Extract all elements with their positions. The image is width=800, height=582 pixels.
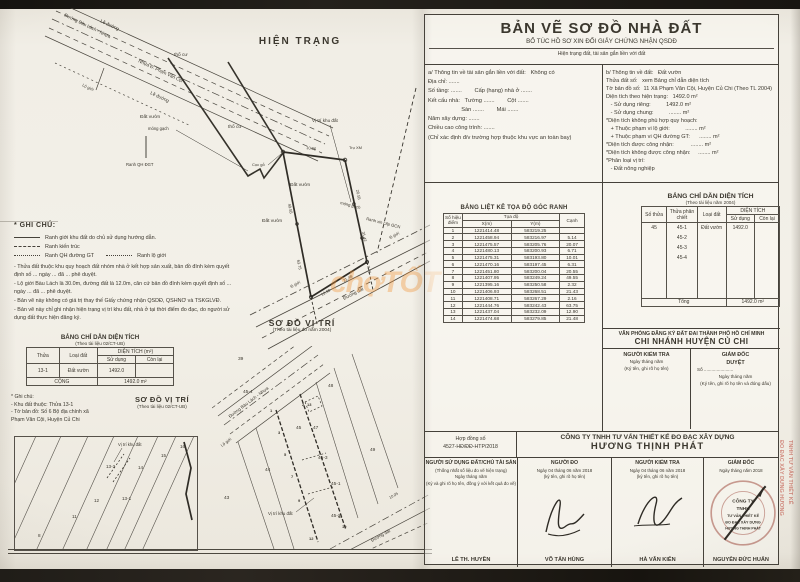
point-no: 14 [444,315,463,322]
y-coord: 583268.51 [511,288,560,295]
edge-length: 63.75 [560,302,585,309]
col-header: Còn lại [136,356,174,364]
parcel-number: 45 [296,425,302,431]
x-coord: 1221414.48 [462,227,511,234]
tables-section: BẢNG LIỆT KÊ TỌA ĐỘ GÓC RANH Số hiệu điể… [425,183,778,431]
coord-row: 7 1221451.80 583200.04 20.55 [444,268,585,275]
sig-sub: (Thống nhất số liệu đo vẽ hiện trạng) [425,468,517,475]
dim-label: 10.05 [306,145,317,151]
y-coord: 583267.29 [511,295,560,302]
coord-row: 14 1221474.68 583279.85 21.48 [444,315,585,322]
marker-label: Cọc gỗ [252,162,265,167]
info-line: Sàn ....... Mái ....... [428,106,599,115]
parcel-number: 45-4 [243,389,253,395]
signer-name: LÊ TH. HUYỀN [425,556,517,564]
checker-cell: NGƯỜI KIỂM TRA Ngày tháng năm (Ký tên, g… [603,349,691,429]
info-line: Tờ bản đồ số: 11 Xã Phạm Văn Cội, Huyện … [606,85,775,93]
sig-cell-surveyor: NGƯỜI ĐO Ngày 04 tháng 06 năm 2018 (ký t… [517,458,611,567]
parcel-number: 13-1 [122,496,132,501]
form-note: Hiện trạng đất, tài sản gắn liền với đất [429,48,774,57]
info-line: *Diện tích được công nhận: ........ m² [606,141,775,149]
total-label: CỘNG [27,378,98,386]
edge-length: 49.55 [560,275,585,282]
feature-label: móng gạch [340,200,362,210]
stamp-bleed-text: TNHH TƯ VẤN THIẾT KẾ ĐO ĐẠC XÂY DỰNG HƯƠ… [780,440,798,565]
sig-cell-checker: NGƯỜI KIỂM TRA Ngày 04 tháng 06 năm 2018… [611,458,703,567]
cell: Đất vườn [59,364,97,378]
table-title: BẢNG CHỈ DẪN DIỆN TÍCH [26,334,174,341]
parcel-number: 12 [94,498,100,503]
location-diagram2: 39 43 44 45 47 48 49 45-1 45-2 45-3 45-4… [212,346,430,550]
info-line: Thửa đất số: xem Bảng chỉ dẫn diện tích [606,77,775,85]
parcel-number: 14 [138,465,144,470]
cell-subtitle: DUYỆT [691,359,780,367]
coord-row: 3 1221475.57 583205.76 20.07 [444,241,585,248]
stamp-text: ĐO ĐẠC XÂY DỰNG [725,519,760,524]
legend-text: Ranh lộ giới [137,252,166,260]
info-line: Số tầng: ....... Cấp (hạng) nhà ở ......… [428,87,599,96]
col-header: Còn lại [754,215,779,223]
sub-parcel: 45-2 [668,235,696,241]
dim-label: 49.55 [287,203,294,215]
footnote-line: Phạm Văn Cội, Huyện Củ Chi [11,417,129,425]
parcel-number: 15 [161,453,167,458]
point-no: 6 [444,261,463,268]
cell-title: GIÁM ĐỐC [691,351,780,359]
edge-length: 6.71 [560,247,585,254]
footnote-line: - Tờ bản đồ: Số 6 Bộ địa chính xã [11,409,129,417]
cell: 13-1 [27,364,60,378]
x-coord: 1221470.16 [462,261,511,268]
point-number: 10 [342,524,347,529]
signature-stroke [518,484,612,542]
total-value: 1492.0 m² [726,298,779,306]
sig-title: NGƯỜI SỬ DỤNG ĐẤT/CHỦ TÀI SẢN [425,460,517,468]
location-diagram1-title: SƠ ĐỒ VỊ TRÍ (Theo tài liệu 02/CT-UB) [116,395,208,409]
point-no: 11 [444,295,463,302]
scanned-land-survey-document: HIỆN TRẠNG [0,0,800,582]
x-coord: 1221480.13 [462,247,511,254]
land-type-label: Đất vườn [262,218,283,224]
info-line: - Sử dụng riêng: 1492.0 m² [606,101,775,109]
cell-title: NGƯỜI KIỂM TRA [603,351,690,359]
page-rule [8,549,432,554]
col-header: Cạnh [560,214,585,228]
sig-title: NGƯỜI ĐO [518,460,611,468]
col-header: DIỆN TÍCH [726,207,779,215]
y-coord: 583250.58 [511,281,560,288]
number-line: Số ....................... [691,367,780,374]
coord-row: 4 1221480.13 583200.93 6.71 [444,247,585,254]
sig-title: GIÁM ĐỐC [704,460,778,468]
source: (Theo tài liệu đo năm 2004) [244,328,360,333]
signer-name: NGUYỄN ĐỨC HUẤN [704,556,778,564]
location-diagram2-title: SƠ ĐỒ VỊ TRÍ (Theo tài liệu đo năm 2004) [244,318,360,333]
y-coord: 583242.43 [511,302,560,309]
office-branch: CHI NHÁNH HUYỆN CỦ CHI [603,337,780,346]
y-coord: 583197.45 [511,261,560,268]
sub-parcel: 45-3 [668,245,696,251]
y-coord: 583279.85 [511,315,560,322]
sign-note: (Ký tên, ghi rõ họ tên) [603,366,690,373]
location-diagram1: 8 11 12 13-1 13-2 14 15 16 Vị trí khu đấ… [14,436,198,551]
sign-note: (ký tên, ghi rõ họ tên) [518,474,611,481]
col-header: Số thửa [642,207,667,223]
coord-row: 8 1221407.95 583249.24 49.55 [444,275,585,282]
point-number: 11 [338,514,343,519]
point-no: 1 [444,227,463,234]
sub-parcel: 45-4 [668,255,696,261]
coord-row: 11 1221408.71 583267.29 2.16 [444,295,585,302]
land-type-label: Đất vườn [140,114,161,120]
edge-length: 20.55 [560,268,585,275]
source: (Theo tài liệu 02/CT-UB) [116,404,208,409]
sig-cell-land-user: NGƯỜI SỬ DỤNG ĐẤT/CHỦ TÀI SẢN (Thống nhấ… [425,458,517,567]
road-label: Lộ giới [220,436,233,447]
coordinates-column: BẢNG LIỆT KÊ TỌA ĐỘ GÓC RANH Số hiệu điể… [425,183,603,431]
x-coord: 1221475.31 [462,254,511,261]
point-no: 7 [444,268,463,275]
col-header: Thửa [27,348,60,364]
x-coord: 1221474.68 [462,315,511,322]
x-coord: 1221444.76 [462,302,511,309]
road-label: lộ giới [289,279,301,288]
vi-tri-label: Vị trí khu đất [268,511,293,516]
area-table: Số thửa Thửa phân chiết Loại đất DIỆN TÍ… [641,206,780,307]
parcel-number: 48 [328,383,334,389]
total-value: 1492.0 m² [97,378,173,386]
company-name: CÔNG TY TNHH TƯ VẤN THIẾT KẾ ĐO ĐẠC XÂY … [517,434,778,441]
col-header: X(m) [462,220,511,227]
area-table-title: BẢNG CHỈ DẪN DIỆN TÍCH [641,193,780,200]
info-line: *Diện tích không được công nhận: .......… [606,149,775,157]
legend-dash-line [14,246,40,247]
coord-row: 1 1221414.48 583219.25 [444,227,585,234]
title: SƠ ĐỒ VỊ TRÍ [116,395,208,404]
coord-row: 6 1221470.16 583197.45 6.31 [444,261,585,268]
dim-label: 10.05 [389,492,399,500]
coord-table-title: BẢNG LIỆT KÊ TỌA ĐỘ GÓC RANH [443,205,585,211]
contract-cell: Hợp đồng số 4527-HĐ/ĐĐ-HTP/2018 [425,432,517,457]
point-no: 10 [444,288,463,295]
date-line: Ngày 04 tháng 06 năm 2018 [612,468,703,475]
parcel-number: 44 [265,467,271,473]
note-line: - Bản vẽ này chỉ ghi nhận hiện trạng vị … [14,306,238,322]
legend-text: Ranh QH đường GT [45,252,94,260]
info-line: Kết cấu nhà: Tường ....... Cột ....... [428,97,599,106]
point-number: 9 [298,498,301,503]
info-line: Chiều cao công trình: ....... [428,124,599,133]
col-header: DIỆN TÍCH (m²) [97,348,173,356]
legend-dashdot-line [14,255,40,256]
info-line: Địa chỉ: ....... [428,78,599,87]
edge-length: 2.32 [560,281,585,288]
info-line: *Phân loại vị trí: [606,157,775,165]
y-coord: 583200.93 [511,247,560,254]
info-line: Năm xây dựng: ....... [428,115,599,124]
form-title: BẢN VẼ SƠ ĐỒ NHÀ ĐẤT [425,20,778,37]
parcel-number: 39 [238,356,244,362]
x-coord: 1221407.95 [462,275,511,282]
note-line: - Bản vẽ này không có giá trị thay thế G… [14,297,238,305]
notes-paragraphs: - Thửa đất thuộc khu quy hoạch đất nhóm … [14,263,238,323]
info-line: a/ Thông tin về tài sản gắn liền với đất… [428,69,599,78]
company-brand: HƯƠNG THỊNH PHÁT [517,441,778,452]
dim-label: 20.55 [355,189,362,201]
coord-row: 13 1221437.04 583232.09 12.90 [444,308,585,315]
road-label: lộ giới [388,230,400,239]
land-type-label: thổ cư [228,123,242,130]
x-coord: 1221475.57 [462,241,511,248]
y-coord: 583193.80 [511,254,560,261]
point-no: 3 [444,241,463,248]
su-dung: 1492.0 [726,223,754,299]
parcel-number: 11 [72,514,77,519]
col-header: Thửa phân chiết [667,207,698,223]
area-index-table-ctub: BẢNG CHỈ DẪN DIỆN TÍCH (Theo tài liệu 02… [26,334,174,386]
stamp-text: HƯƠNG THỊNH PHÁT [725,525,762,530]
signer-name: HÀ VĂN KIÊN [612,556,703,564]
total-label: Tổng [642,298,727,306]
col-header: Loại đất [59,348,97,364]
title: SƠ ĐỒ VỊ TRÍ [244,318,360,328]
coord-row: 9 1221395.16 583250.58 2.32 [444,281,585,288]
sig-cell-director: GIÁM ĐỐC Ngày tháng năm 2018 CÔNG TY TNH… [703,458,778,567]
sign-note: (Ký tên, ghi rõ họ tên và đóng dấu) [691,381,780,388]
info-line: + Thuộc phạm vi lộ giới: ........ m² [606,125,775,133]
cell [136,364,174,378]
loai-dat: Đất vườn [697,223,726,299]
coord-row: 2 1221458.94 583216.97 5.14 [444,234,585,241]
info-line: Diện tích theo hiện trạng: 1492.0 m² [606,93,775,101]
point-number: 1 [270,408,273,413]
date-line: Ngày tháng năm [603,359,690,366]
footnote-line: - Khu đất thuộc: Thửa 13-1 [11,402,129,410]
x-coord: 1221395.16 [462,281,511,288]
notes-title: * GHI CHÚ: [14,221,238,232]
point-number: 5 [284,452,287,457]
point-no: 4 [444,247,463,254]
registry-office-block: VĂN PHÒNG ĐĂNG KÝ ĐẤT ĐAI THÀNH PHỐ HỒ C… [603,328,780,431]
legend-dashdot-line [106,255,132,256]
point-no: 12 [444,302,463,309]
point-no: 2 [444,234,463,241]
col-header: Loại đất [697,207,726,223]
point-number: 3 [278,430,281,435]
point-no: 5 [444,254,463,261]
point-no: 9 [444,281,463,288]
signature-stroke [612,484,704,542]
col-header: Y(m) [511,220,560,227]
con-lai [754,223,779,299]
so-thua: 45 [642,223,667,299]
info-line: + Thuộc phạm vi QH đường GT: ........ m² [606,133,775,141]
parcel-number: 43 [224,495,230,501]
info-line: - Sử dụng chung: ........ m² [606,109,775,117]
contract-number: 4527-HĐ/ĐĐ-HTP/2018 [425,443,516,451]
edge-length: 6.31 [560,261,585,268]
date-line: Ngày tháng năm [691,374,780,381]
info-section: a/ Thông tin về tài sản gắn liền với đất… [425,65,778,183]
coord-row: 5 1221475.31 583193.80 10.01 [444,254,585,261]
feature-label: móng gạch [148,126,169,131]
coord-row: 12 1221444.76 583242.43 63.75 [444,302,585,309]
area-table-source: (Theo tài liệu năm 2004) [641,200,780,205]
scan-crease [0,221,58,222]
y-coord: 583200.04 [511,268,560,275]
info-line: b/ Thông tin về đất: Đất vườn [606,69,775,77]
coord-table: Số hiệu điểm Tọa độ Cạnh X(m) Y(m) [443,213,585,323]
point-no: 13 [444,308,463,315]
date-line: Ngày tháng năm 2018 [704,468,778,475]
bleed-line: TNHH TƯ VẤN THIẾT KẾ [785,440,794,565]
info-line: - Đất nông nghiệp [606,165,775,173]
parcel-number: 8 [38,533,41,538]
date-line: Ngày 04 tháng 06 năm 2018 [518,468,611,475]
notes-block: * GHI CHÚ: Ranh giới khu đất do chủ sử d… [14,221,238,324]
land-type-label: thổ cư [174,51,188,58]
sign-note: (ký tên, ghi rõ họ tên) [612,474,703,481]
edge-length: 2.16 [560,295,585,302]
footnote-line: * Ghi chú: [11,394,129,402]
note-line: - Lộ giới Bàu Lách là 30.0m, đường đất l… [14,280,238,296]
parcel-number: 47 [313,425,319,431]
company-cell: CÔNG TY TNHH TƯ VẤN THIẾT KẾ ĐO ĐẠC XÂY … [517,432,778,457]
x-coord: 1221437.04 [462,308,511,315]
phan-chiet-list: 45-145-245-345-4 [667,223,698,299]
note-line: - Thửa đất thuộc khu quy hoạch đất nhóm … [14,263,238,279]
edge-length: 5.14 [560,234,585,241]
marker-label: Trụ XM [349,145,362,150]
parcel-number: 45-1 [331,481,341,487]
signature-section: Hợp đồng số 4527-HĐ/ĐĐ-HTP/2018 CÔNG TY … [425,431,778,566]
y-coord: 583232.09 [511,308,560,315]
x-coord: 1221458.94 [462,234,511,241]
x-coord: 1221451.80 [462,268,511,275]
dim-label: 63.75 [296,259,303,271]
area-office-column: BẢNG CHỈ DẪN DIỆN TÍCH (Theo tài liệu nă… [603,183,778,431]
col-header: Sử dụng [726,215,754,223]
cell: 1492.0 [97,364,135,378]
point-number: 13 [307,402,312,407]
point-no: 8 [444,275,463,282]
edge-length [560,227,585,234]
coord-row: 10 1221406.93 583268.51 21.43 [444,288,585,295]
land-info-column: b/ Thông tin về đất: Đất vườnThửa đất số… [603,65,778,182]
point-number: 7 [291,474,294,479]
boundary-label: Ranh QH ĐGT [126,162,154,167]
signer-name: VÕ TẤN HÙNG [518,556,611,564]
edge-length: 21.48 [560,315,585,322]
y-coord: 583216.97 [511,234,560,241]
parcel-number: 13-2 [106,464,116,469]
edge-length: 21.43 [560,288,585,295]
y-coord: 583219.25 [511,227,560,234]
parcel-number: 49 [370,447,376,453]
legend-text: Ranh giới khu đất do chủ sử dụng hướng d… [45,234,156,242]
col-header: Sử dụng [97,356,135,364]
legend-text: Ranh kiến trúc [45,243,80,251]
form-title-block: BẢN VẼ SƠ ĐỒ NHÀ ĐẤT BỔ TÚC HỒ SƠ XIN ĐỔ… [425,15,778,65]
road-label: Lộ giới [82,82,95,92]
road-label: Lề đường [150,90,171,103]
survey-form: BẢN VẼ SƠ ĐỒ NHÀ ĐẤT BỔ TÚC HỒ SƠ XIN ĐỔ… [424,14,779,565]
parcel-number: 45-3 [318,455,328,461]
asset-info-column: a/ Thông tin về tài sản gắn liền với đất… [425,65,603,182]
sig-title: NGƯỜI KIỂM TRA [612,460,703,468]
parcel-number: 16 [180,444,186,449]
x-coord: 1221408.71 [462,295,511,302]
edge-length: 10.01 [560,254,585,261]
vi-tri-label: Vị trí khu đất [118,442,142,447]
col-header: Số hiệu điểm [444,214,463,228]
legend-solid-line [14,237,40,238]
bleed-line: ĐO ĐẠC XÂY DỰNG HƯƠNG [780,440,785,565]
x-coord: 1221406.93 [462,288,511,295]
sub-parcel: 45-1 [668,225,696,231]
director-cell: GIÁM ĐỐC DUYỆT Số ......................… [691,349,780,429]
y-coord: 583249.24 [511,275,560,282]
left-footnote: * Ghi chú:- Khu đất thuộc: Thửa 13-1- Tờ… [11,394,129,424]
vi-tri-label: Vị trí khu đất [312,118,339,123]
sign-note: (Ký và ghi rõ họ tên, đồng ý với kết quả… [425,481,517,488]
company-stamp: CÔNG TY TNHH TƯ VẤN THIẾT KẾ ĐO ĐẠC XÂY … [704,476,782,550]
point-number: 12 [309,536,314,541]
edge-length: 20.07 [560,241,585,248]
date-line: Ngày tháng năm [425,474,517,481]
info-line: (Chỉ xác định đ/v trường hợp thuộc khu v… [428,134,599,143]
table-source: (Theo tài liệu 02/CT-UB) [26,341,174,346]
contract-label: Hợp đồng số [425,435,516,443]
col-header: Tọa độ [462,214,559,221]
land-type-label: Đất vườn [290,182,311,188]
edge-length: 12.90 [560,308,585,315]
form-subtitle: BỔ TÚC HỒ SƠ XIN ĐỔI GIẤY CHỨNG NHẬN QSD… [425,38,778,45]
info-line: *Diện tích không phù hợp quy hoạch: [606,117,775,125]
y-coord: 583205.76 [511,241,560,248]
scan-edge-bottom [0,569,800,582]
